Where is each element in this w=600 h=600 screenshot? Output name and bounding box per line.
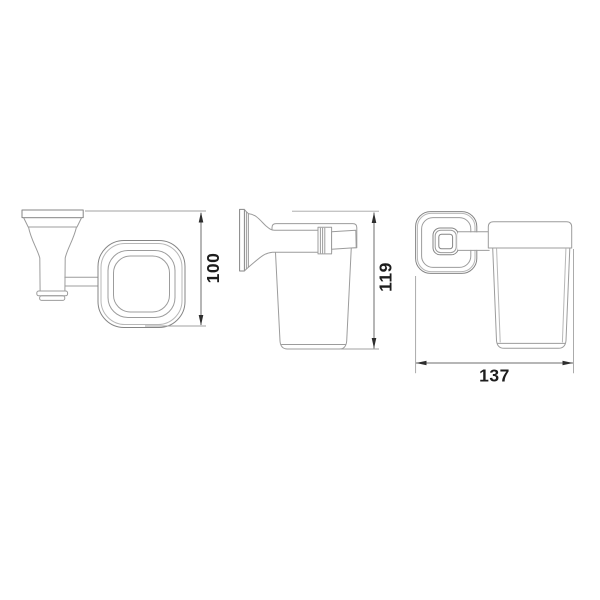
arrowhead-down	[199, 315, 204, 326]
dimension-label-width: 137	[479, 366, 510, 386]
dimension-label-depth: 100	[203, 253, 223, 284]
side-view	[240, 209, 357, 349]
wall-plate-bevel	[24, 218, 82, 227]
wall-plate-top-edge	[22, 210, 83, 218]
cup-rim-front	[488, 222, 571, 248]
cup-body-front	[493, 248, 570, 348]
bracket-post-cap-ring	[37, 291, 68, 296]
dimension-label-height: 119	[376, 262, 396, 292]
arrowhead-right	[563, 361, 574, 366]
arrowhead-up	[199, 212, 204, 223]
arrowhead-up	[372, 213, 377, 224]
wall-plate-side	[240, 209, 245, 271]
technical-drawing: 100 119	[0, 0, 600, 600]
bracket-post-cap-tip	[40, 296, 65, 301]
holder-ring-side	[332, 230, 357, 249]
bracket-flare-left-edge	[29, 227, 41, 291]
holder-arm-body	[458, 232, 489, 250]
arrowhead-left	[416, 361, 427, 366]
top-view	[22, 210, 185, 328]
arrowhead-down	[372, 338, 377, 349]
bracket-flare-right-edge	[65, 227, 77, 291]
front-view	[416, 212, 572, 349]
drawing-canvas: 100 119	[0, 0, 600, 600]
cup-outer-rim-outline	[98, 241, 185, 328]
